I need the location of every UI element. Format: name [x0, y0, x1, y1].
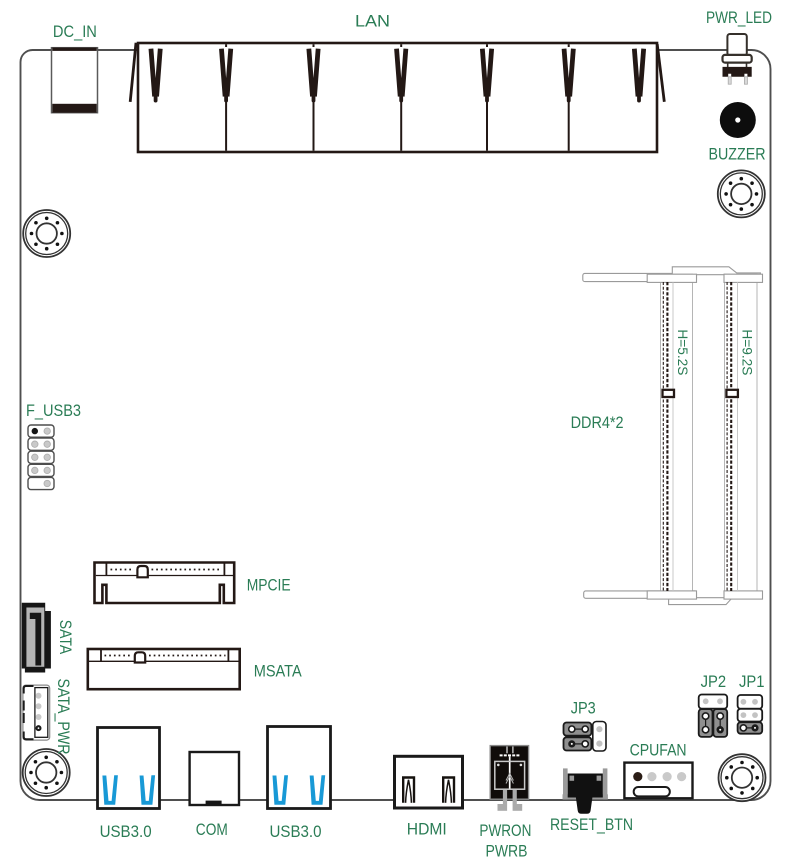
svg-text:USB3.0: USB3.0: [270, 822, 322, 841]
svg-text:H=5.2S: H=5.2S: [675, 329, 690, 375]
svg-text:SATA_PWR: SATA_PWR: [54, 679, 73, 755]
svg-text:JP3: JP3: [571, 699, 596, 718]
svg-text:H=9.2S: H=9.2S: [739, 329, 754, 375]
svg-text:BUZZER: BUZZER: [709, 144, 766, 163]
svg-text:USB3.0: USB3.0: [100, 822, 152, 841]
svg-text:PWRB: PWRB: [486, 842, 528, 861]
svg-text:F_USB3: F_USB3: [26, 401, 81, 420]
svg-text:RESET_BTN: RESET_BTN: [550, 815, 633, 834]
svg-text:MSATA: MSATA: [254, 662, 303, 681]
svg-text:COM: COM: [196, 820, 228, 839]
svg-text:CPUFAN: CPUFAN: [630, 741, 687, 760]
svg-text:DC_IN: DC_IN: [53, 22, 97, 41]
svg-text:PWRON: PWRON: [479, 821, 531, 840]
svg-text:SATA: SATA: [56, 620, 75, 655]
svg-text:LAN: LAN: [355, 12, 390, 31]
svg-text:JP2: JP2: [701, 672, 727, 691]
svg-text:MPCIE: MPCIE: [247, 576, 291, 595]
svg-text:PWR_LED: PWR_LED: [706, 8, 772, 27]
svg-text:DDR4*2: DDR4*2: [571, 413, 624, 432]
svg-text:JP1: JP1: [739, 672, 765, 691]
svg-text:HDMI: HDMI: [407, 820, 447, 839]
